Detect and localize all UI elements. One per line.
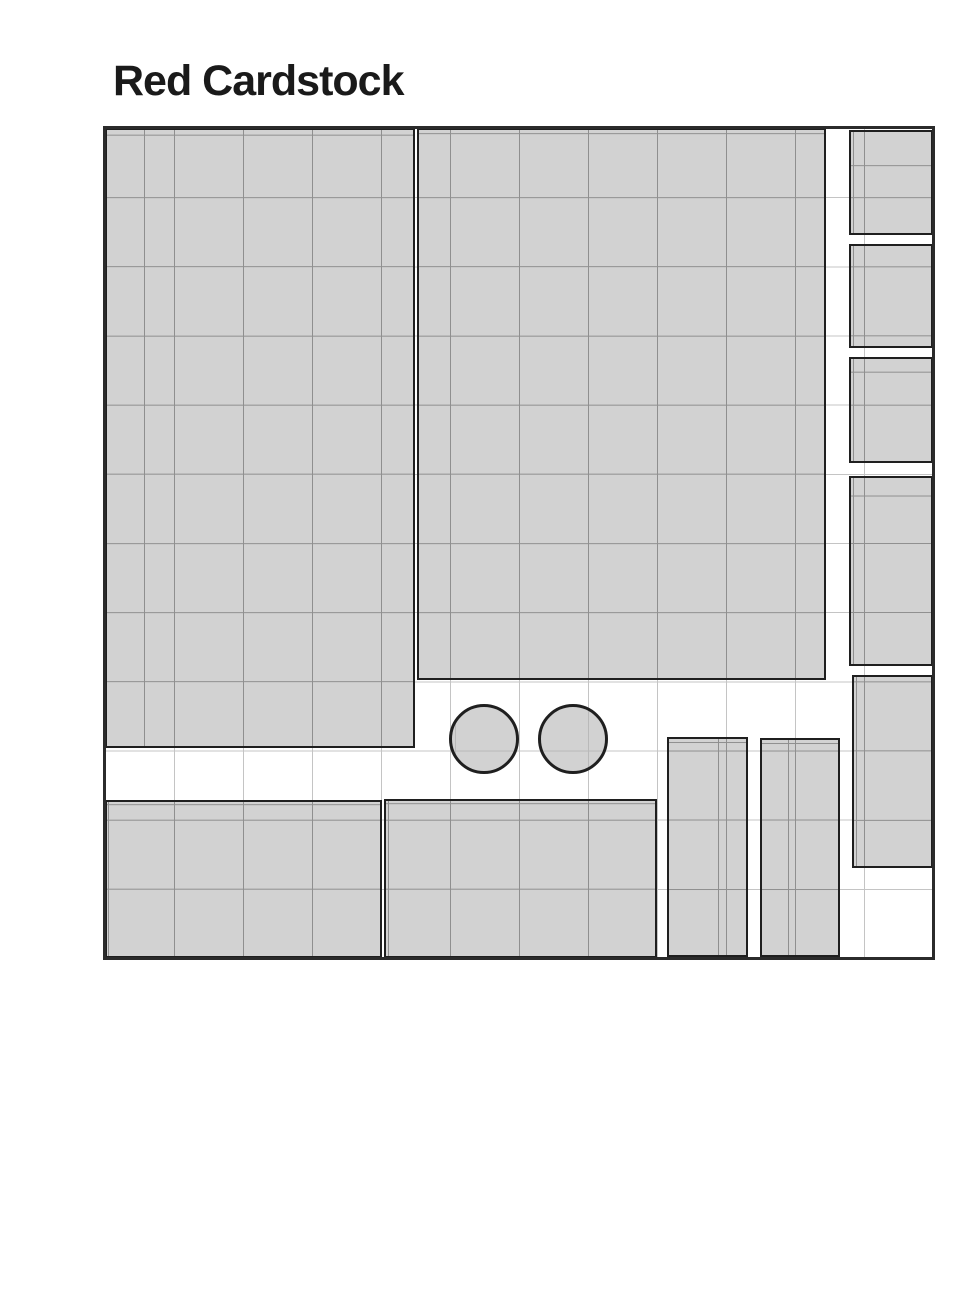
piece-right-column-2	[849, 244, 933, 348]
piece-right-column-1	[849, 130, 933, 235]
piece-bottom-middle	[384, 799, 657, 958]
cardstock-sheet	[105, 128, 933, 958]
piece-large-left	[105, 128, 415, 748]
piece-right-column-3	[849, 357, 933, 463]
piece-circle-2	[538, 704, 608, 774]
piece-bottom-vertical-1	[667, 737, 748, 957]
page-title: Red Cardstock	[113, 58, 403, 105]
piece-large-middle	[417, 128, 826, 680]
piece-right-column-4	[849, 476, 933, 666]
piece-right-column-5	[852, 675, 933, 868]
piece-bottom-left	[105, 800, 382, 958]
page: Red Cardstock	[0, 0, 980, 1308]
piece-circle-1	[449, 704, 519, 774]
piece-bottom-vertical-2	[760, 738, 840, 957]
